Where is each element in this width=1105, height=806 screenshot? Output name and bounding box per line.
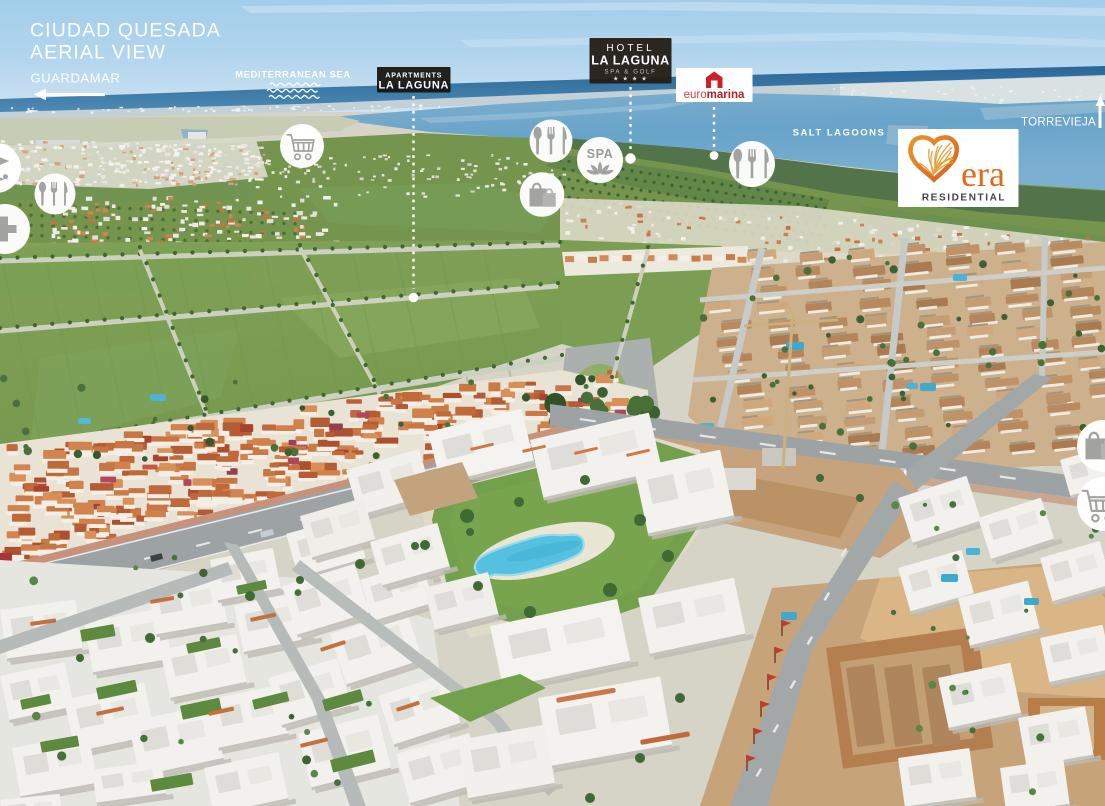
- svg-text:HOTEL: HOTEL: [606, 43, 654, 54]
- svg-text:SPA: SPA: [587, 147, 614, 161]
- svg-text:★ ★ ★ ★: ★ ★ ★ ★: [613, 76, 648, 83]
- svg-text:LA LAGUNA: LA LAGUNA: [378, 80, 449, 92]
- svg-text:CIUDAD QUESADA: CIUDAD QUESADA: [30, 20, 221, 42]
- svg-text:MEDITERRANEAN SEA: MEDITERRANEAN SEA: [235, 70, 351, 81]
- svg-text:era: era: [961, 154, 1005, 194]
- svg-text:RESIDENTIAL: RESIDENTIAL: [922, 193, 1006, 204]
- svg-text:TORREVIEJA: TORREVIEJA: [1021, 117, 1096, 129]
- svg-text:APARTMENTS: APARTMENTS: [385, 73, 442, 80]
- svg-text:GUARDAMAR: GUARDAMAR: [31, 71, 121, 86]
- svg-text:SALT LAGOONS: SALT LAGOONS: [793, 128, 886, 139]
- svg-text:SPA & GOLF: SPA & GOLF: [605, 70, 657, 76]
- svg-text:euromarina: euromarina: [684, 89, 745, 101]
- svg-text:LA LAGUNA: LA LAGUNA: [591, 54, 670, 68]
- svg-text:AERIAL VIEW: AERIAL VIEW: [30, 42, 166, 64]
